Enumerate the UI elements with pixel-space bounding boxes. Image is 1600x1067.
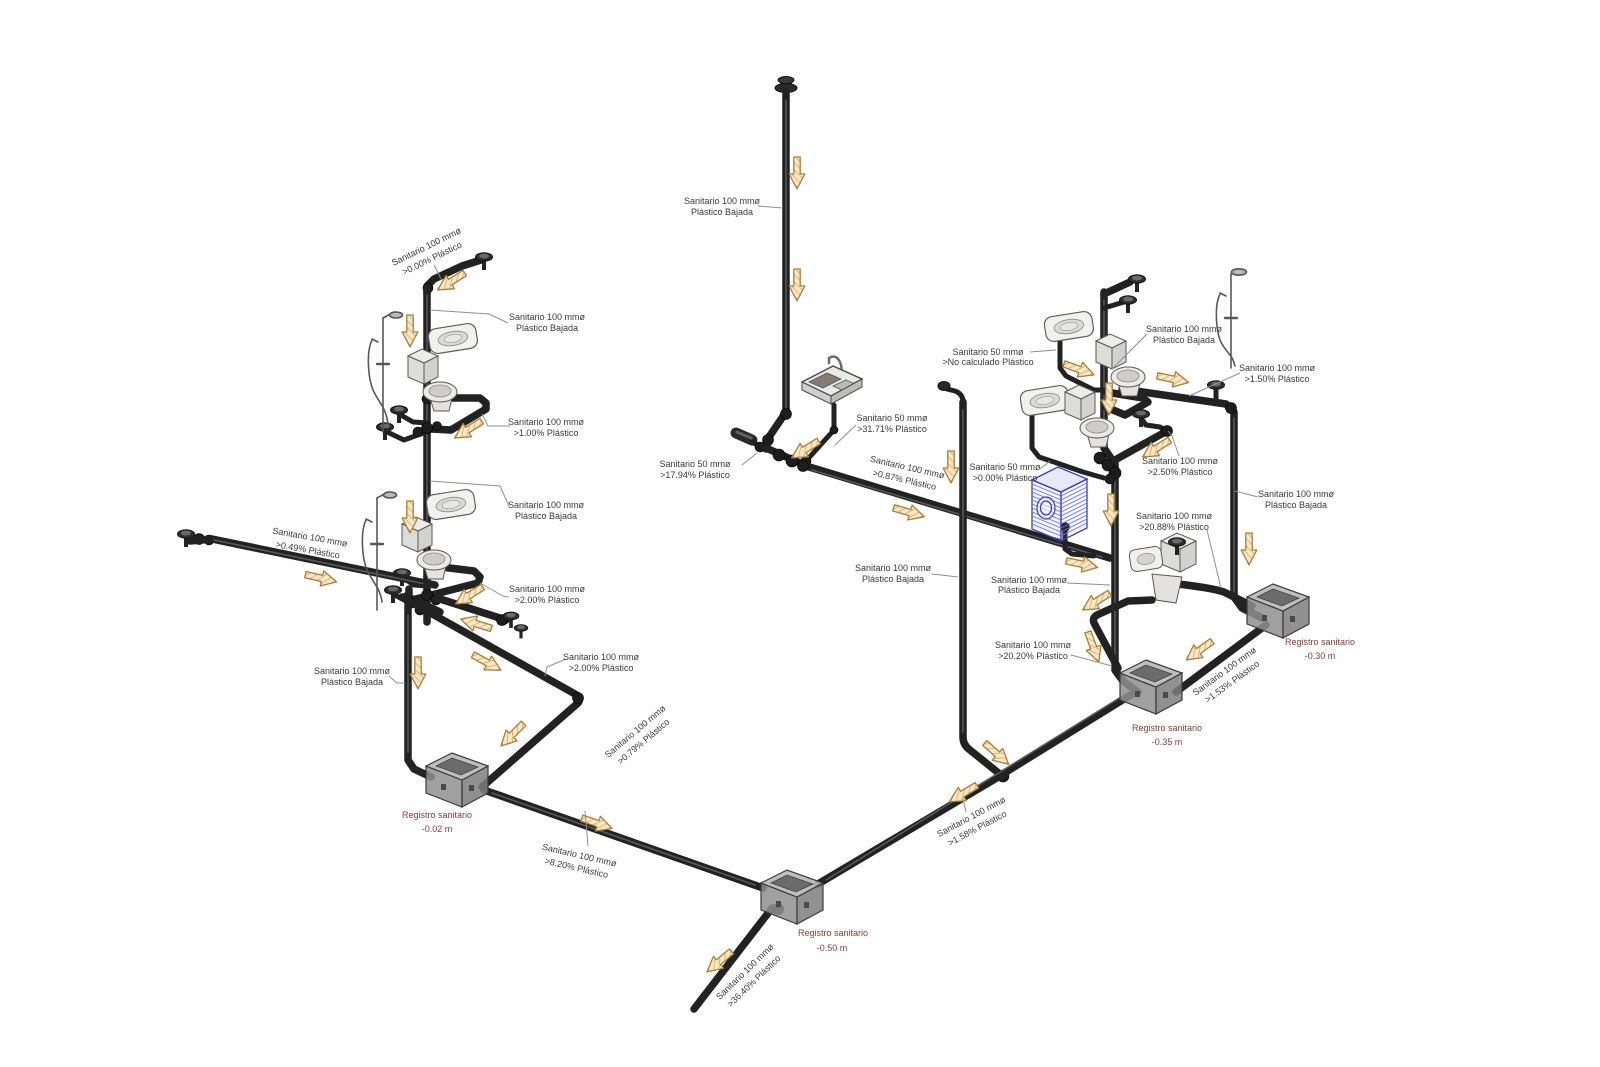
svg-text:Registro sanitario: Registro sanitario: [402, 810, 472, 820]
svg-text:>20.20% Plástico: >20.20% Plástico: [998, 651, 1068, 661]
svg-text:Sanitario 100 mmø: Sanitario 100 mmø: [508, 417, 585, 427]
svg-text:Sanitario 100 mmø: Sanitario 100 mmø: [1239, 363, 1316, 373]
svg-text:>31.71% Plástico: >31.71% Plástico: [857, 424, 927, 434]
svg-text:Sanitario 100 mmø: Sanitario 100 mmø: [1142, 456, 1219, 466]
svg-text:>20.88% Plástico: >20.88% Plástico: [1139, 522, 1209, 532]
svg-text:-0.02 m: -0.02 m: [422, 824, 453, 834]
svg-text:Sanitario 100 mmø: Sanitario 100 mmø: [1146, 324, 1223, 334]
svg-text:>2.00% Plástico: >2.00% Plástico: [515, 595, 580, 605]
svg-text:Plástico Bajada: Plástico Bajada: [515, 511, 577, 521]
svg-text:-0.35 m: -0.35 m: [1152, 737, 1183, 747]
svg-text:-0.30 m: -0.30 m: [1305, 651, 1336, 661]
svg-text:Sanitario 100 mmø: Sanitario 100 mmø: [563, 652, 640, 662]
svg-text:Plástico Bajada: Plástico Bajada: [1153, 335, 1215, 345]
svg-text:Sanitario 100 mmø: Sanitario 100 mmø: [509, 584, 586, 594]
svg-text:Sanitario 100 mmø: Sanitario 100 mmø: [314, 666, 391, 676]
svg-text:Sanitario 100 mmø: Sanitario 100 mmø: [684, 196, 761, 206]
svg-text:Plástico Bajada: Plástico Bajada: [321, 677, 383, 687]
svg-text:Sanitario 100 mmø: Sanitario 100 mmø: [995, 640, 1072, 650]
svg-text:Sanitario 100 mmø: Sanitario 100 mmø: [508, 500, 585, 510]
svg-text:Sanitario 100 mmø: Sanitario 100 mmø: [991, 575, 1068, 585]
svg-text:Sanitario 50 mmø: Sanitario 50 mmø: [856, 413, 928, 423]
svg-text:Plástico Bajada: Plástico Bajada: [1265, 500, 1327, 510]
svg-text:>1.00% Plástico: >1.00% Plástico: [514, 428, 579, 438]
svg-text:>0.00% Plástico: >0.00% Plástico: [973, 473, 1038, 483]
svg-text:Sanitario 50 mmø: Sanitario 50 mmø: [969, 462, 1041, 472]
svg-text:>17.94% Plástico: >17.94% Plástico: [660, 470, 730, 480]
svg-text:Plástico Bajada: Plástico Bajada: [862, 574, 924, 584]
svg-text:Sanitario 100 mmø: Sanitario 100 mmø: [855, 563, 932, 573]
svg-text:Sanitario 50 mmø: Sanitario 50 mmø: [659, 459, 731, 469]
svg-text:>2.50% Plástico: >2.50% Plástico: [1148, 467, 1213, 477]
svg-text:Sanitario 100 mmø: Sanitario 100 mmø: [509, 312, 586, 322]
svg-text:Registro sanitario: Registro sanitario: [1285, 637, 1355, 647]
svg-text:>No calculado Plástico: >No calculado Plástico: [942, 357, 1033, 367]
svg-text:Plástico Bajada: Plástico Bajada: [516, 323, 578, 333]
svg-text:Plástico Bajada: Plástico Bajada: [998, 585, 1060, 595]
svg-text:>2.00% Plástico: >2.00% Plástico: [569, 663, 634, 673]
svg-text:-0.50 m: -0.50 m: [817, 943, 848, 953]
svg-text:Plástico Bajada: Plástico Bajada: [691, 207, 753, 217]
svg-text:Sanitario 100 mmø: Sanitario 100 mmø: [1136, 511, 1213, 521]
svg-text:Registro sanitario: Registro sanitario: [798, 928, 868, 938]
svg-text:Sanitario 100 mmø: Sanitario 100 mmø: [1258, 489, 1335, 499]
svg-text:Sanitario 50 mmø: Sanitario 50 mmø: [952, 347, 1024, 357]
svg-text:Registro sanitario: Registro sanitario: [1132, 723, 1202, 733]
svg-text:>1.50% Plástico: >1.50% Plástico: [1245, 374, 1310, 384]
